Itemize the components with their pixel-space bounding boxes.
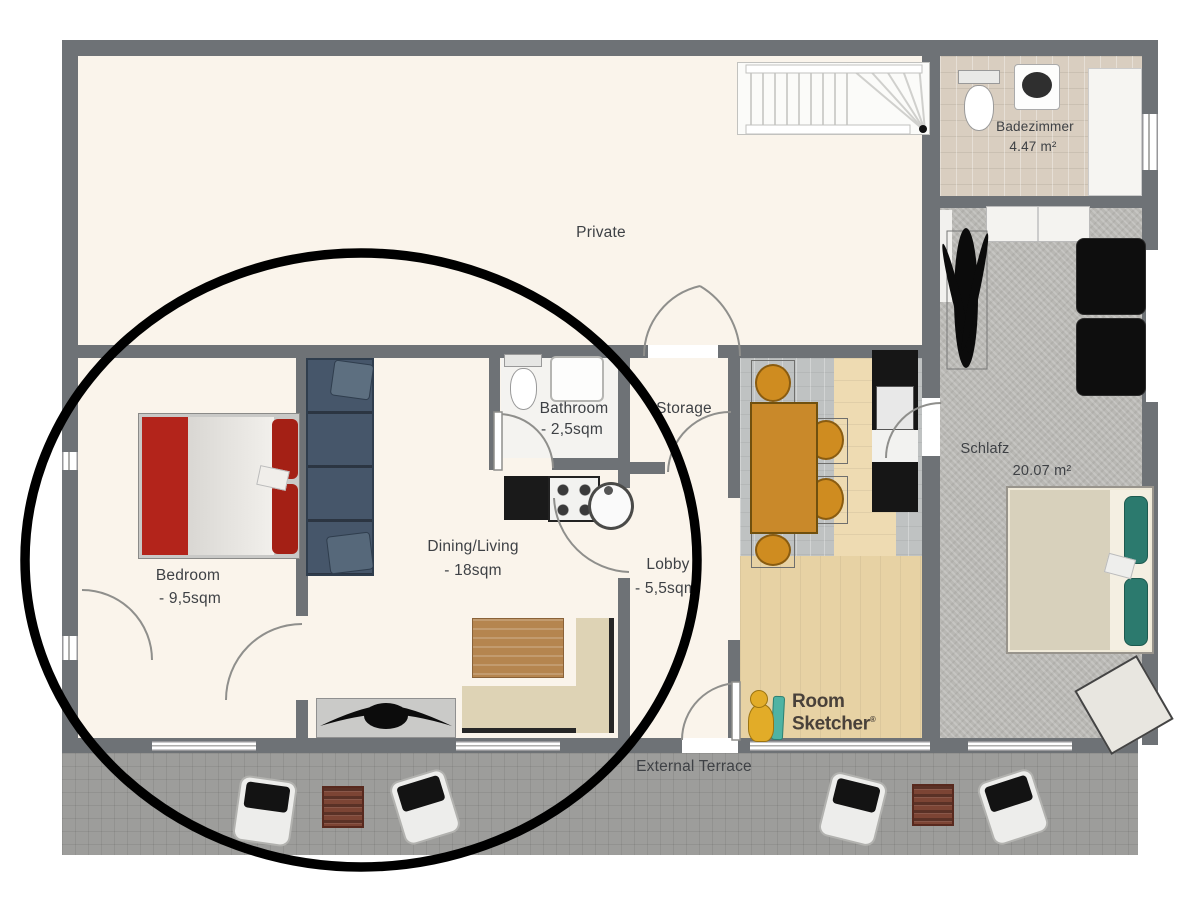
wall-lobby-left-upper <box>618 358 630 488</box>
room-area-dining-living: - 18sqm <box>444 562 501 580</box>
kitchenette-counter <box>504 476 548 520</box>
kitchenette-faucet-icon <box>604 486 613 495</box>
living-coffee-table <box>472 618 564 678</box>
roomsketcher-mascot-head-icon <box>750 690 768 708</box>
window-bedroom-west-lower <box>62 636 78 660</box>
window-living-south <box>456 741 560 751</box>
floor-plan-canvas: Private Badezimmer 4.47 m² Bathroom - 2,… <box>0 0 1200 900</box>
window-schlafzimmer-east <box>1146 250 1158 402</box>
dining-chair <box>755 364 791 402</box>
badezimmer-toilet-bowl-icon <box>964 85 994 131</box>
wall-lobby-right-upper <box>728 358 740 498</box>
room-label-bathroom: Bathroom <box>540 400 609 418</box>
schlafzimmer-closet <box>986 206 1090 242</box>
schlafzimmer-wall-shelf <box>940 210 952 302</box>
window-bedroom-west-upper <box>62 452 78 470</box>
roomsketcher-mascot-icon <box>748 704 774 742</box>
roomsketcher-logo: Room Sketcher® <box>792 693 875 733</box>
badezimmer-sink-basin-icon <box>1022 72 1052 98</box>
schlafzimmer-pillow-bottom <box>1124 578 1148 646</box>
living-l-sofa-vertical <box>576 618 614 733</box>
badezimmer-shower-area <box>1088 68 1142 196</box>
living-sofa-pillow <box>330 359 375 400</box>
terrace-side-table <box>912 784 954 826</box>
schlafzimmer-pillow-top <box>1124 496 1148 564</box>
wall-bathroom-bottom-west <box>489 458 500 470</box>
room-area-schlafzimmer: 20.07 m² <box>1013 463 1072 479</box>
bathroom-toilet-tank <box>504 354 542 367</box>
logo-line1: Room <box>792 693 875 711</box>
registered-mark: ® <box>870 715 876 724</box>
schlafzimmer-sofa-seat-bottom <box>1076 318 1146 396</box>
bathroom-shower-tray <box>550 356 604 402</box>
room-label-lobby: Lobby <box>646 556 689 574</box>
dining-table <box>750 402 818 534</box>
room-area-bathroom: - 2,5sqm <box>541 421 603 439</box>
wall-mid-vertical-lower <box>922 456 940 745</box>
wall-lobby-right-lower <box>728 640 740 738</box>
staircase-treads-icon <box>738 63 931 136</box>
schlafzimmer-bed-mattress <box>1010 490 1110 650</box>
schlafzimmer-sofa-seat-top <box>1076 238 1146 315</box>
room-label-storage: Storage <box>656 400 712 418</box>
room-label-bedroom: Bedroom <box>156 567 220 585</box>
kitchen-sink <box>876 386 914 430</box>
wall-bedroom-divider-lower <box>296 700 308 738</box>
room-label-badezimmer: Badezimmer <box>996 119 1074 134</box>
kitchen-counter-white <box>872 430 918 462</box>
bedroom-bed-blanket <box>142 417 188 555</box>
terrace-side-table <box>322 786 364 828</box>
terrace-lounge-chair <box>232 774 299 847</box>
room-label-terrace: External Terrace <box>636 758 752 776</box>
living-sofa-pillow <box>326 531 374 574</box>
chair-cushion <box>243 781 290 813</box>
wall-top <box>62 40 1158 56</box>
wall-lobby-left-lower <box>618 578 630 738</box>
chair-cushion <box>832 777 881 813</box>
bedroom-bed-mattress <box>188 417 274 555</box>
staircase <box>737 62 930 135</box>
logo-line2: Sketcher® <box>792 711 875 733</box>
window-bedroom-south <box>152 741 256 751</box>
kitchen-counter-lower <box>872 462 918 512</box>
room-area-badezimmer: 4.47 m² <box>1009 139 1056 154</box>
chair-cushion <box>396 775 446 813</box>
wall-bathroom-left <box>489 358 500 458</box>
room-label-dining-living: Dining/Living <box>427 538 518 556</box>
chair-cushion <box>984 775 1034 813</box>
bedroom-pillow-bottom <box>272 484 298 554</box>
dining-chair <box>755 534 791 566</box>
room-area-lobby: - 5,5sqm <box>635 580 697 598</box>
living-tv-console <box>316 698 456 738</box>
badezimmer-toilet-tank <box>958 70 1000 84</box>
window-badezimmer-east <box>1142 114 1158 170</box>
terrace-floor <box>62 753 1138 855</box>
wall-storage-bottom <box>630 462 665 474</box>
room-label-schlafzimmer: Schlafz <box>961 441 1010 457</box>
room-label-private: Private <box>576 224 626 242</box>
bathroom-toilet-bowl-icon <box>510 368 537 410</box>
window-schlafzimmer-south <box>968 741 1072 751</box>
room-area-bedroom: - 9,5sqm <box>159 590 221 608</box>
window-kitchen-south <box>750 741 930 751</box>
